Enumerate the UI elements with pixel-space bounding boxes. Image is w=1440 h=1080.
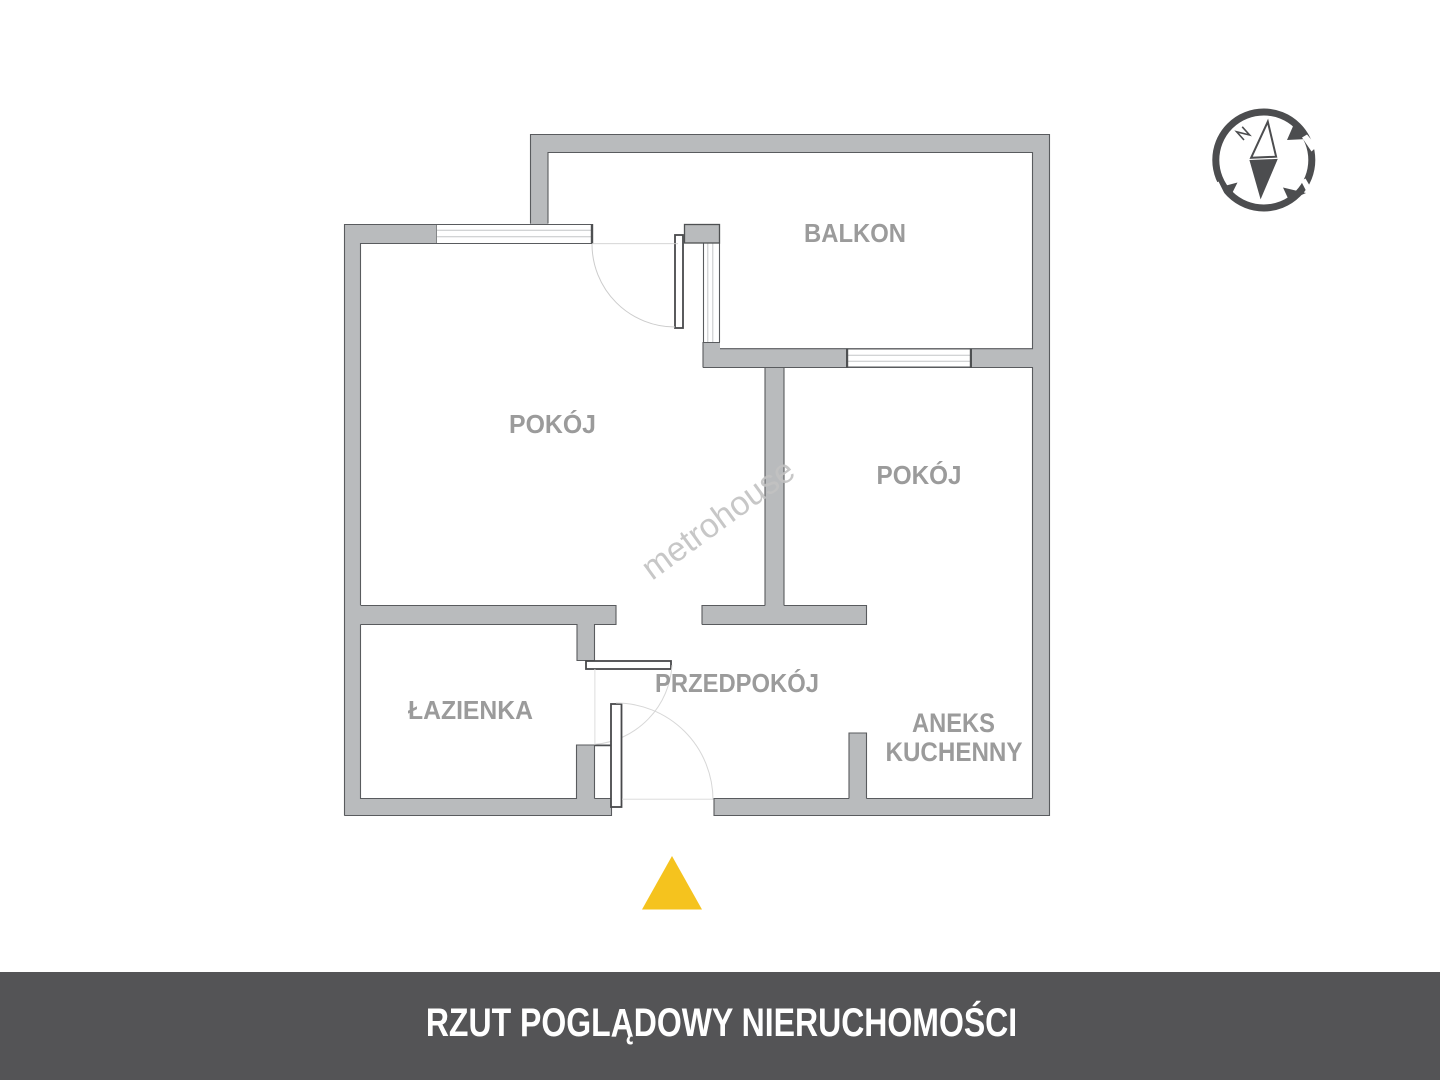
svg-text:RZUT POGLĄDOWY NIERUCHOMOŚCI: RZUT POGLĄDOWY NIERUCHOMOŚCI	[426, 998, 1017, 1044]
svg-text:POKÓJ: POKÓJ	[509, 409, 596, 439]
svg-text:BALKON: BALKON	[804, 218, 906, 248]
svg-text:KUCHENNY: KUCHENNY	[886, 737, 1023, 767]
svg-text:ŁAZIENKA: ŁAZIENKA	[408, 695, 533, 725]
svg-text:ANEKS: ANEKS	[912, 708, 995, 738]
svg-text:POKÓJ: POKÓJ	[877, 460, 962, 490]
svg-text:PRZEDPOKÓJ: PRZEDPOKÓJ	[655, 668, 819, 698]
